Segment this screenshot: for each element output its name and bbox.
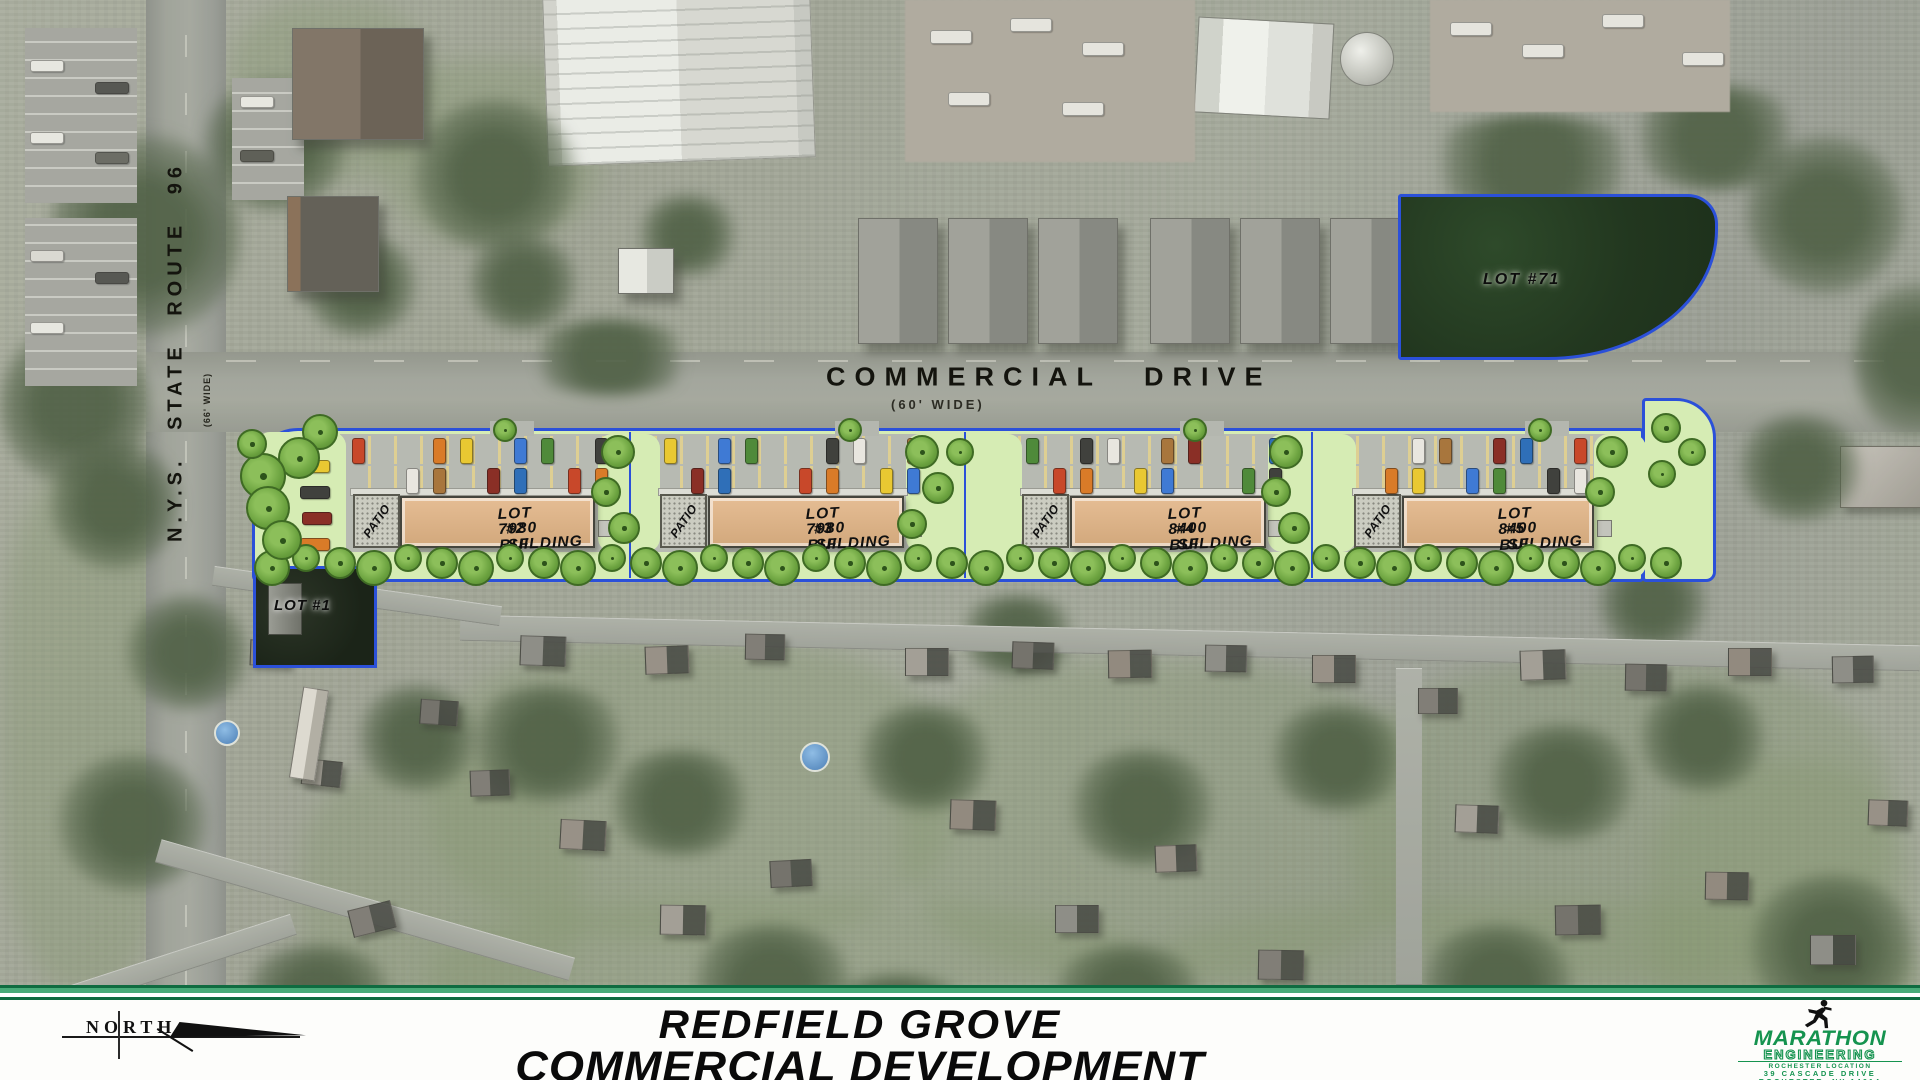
parked-car (1242, 468, 1255, 494)
parked-car (826, 468, 839, 494)
tree (1172, 550, 1208, 586)
tree (1596, 436, 1628, 468)
parked-car (1547, 468, 1560, 494)
tree (1278, 512, 1310, 544)
tree (1548, 547, 1580, 579)
tree (394, 544, 422, 572)
lot-2-patio: PATIO (353, 494, 400, 548)
north-arrow-icon (170, 1022, 306, 1037)
tree (1478, 550, 1514, 586)
tree (904, 544, 932, 572)
parked-car (1053, 468, 1066, 494)
parked-car (568, 468, 581, 494)
commercial-drive-width-note: (60' WIDE) (891, 397, 985, 412)
utility-pad (1597, 520, 1612, 537)
tree (764, 550, 800, 586)
lot-3-patio: PATIO (660, 494, 707, 548)
parked-car (433, 468, 446, 494)
tree (1210, 544, 1238, 572)
tree (1585, 477, 1615, 507)
tree (1414, 544, 1442, 572)
tree (1183, 418, 1207, 442)
parked-car (514, 438, 527, 464)
tree (1446, 547, 1478, 579)
tree (968, 550, 1004, 586)
parked-car (1161, 468, 1174, 494)
parked-car (1493, 438, 1506, 464)
tree (458, 550, 494, 586)
lot-71-label: LOT #71 (1483, 271, 1560, 289)
lot-4-patio: PATIO (1022, 494, 1069, 548)
tree (630, 547, 662, 579)
tree (1274, 550, 1310, 586)
route-96-label: N.Y.S. STATE ROUTE 96 (165, 162, 188, 542)
parked-car (406, 468, 419, 494)
parked-car (514, 468, 527, 494)
tree (866, 550, 902, 586)
tree (601, 435, 635, 469)
lot-2-building: LOT #2 7980 SF BUILDING (400, 496, 595, 548)
tree (1651, 413, 1681, 443)
sheet-title: REDFIELD GROVE COMMERCIAL DEVELOPMENT (314, 1005, 1406, 1080)
tree (560, 550, 596, 586)
queued-car (302, 512, 332, 525)
parked-car (1080, 468, 1093, 494)
north-arrow: NORTH (62, 1005, 312, 1061)
tree (662, 550, 698, 586)
tree (1648, 460, 1676, 488)
north-label: NORTH (86, 1017, 176, 1038)
parked-car (487, 468, 500, 494)
parked-car (1493, 468, 1506, 494)
parked-car (745, 438, 758, 464)
tree (598, 544, 626, 572)
firm-division: ENGINEERING (1738, 1047, 1902, 1062)
parked-car (1520, 438, 1533, 464)
runner-icon (1802, 999, 1836, 1029)
parked-car (853, 438, 866, 464)
parked-car (880, 468, 893, 494)
tree (802, 544, 830, 572)
tree (356, 550, 392, 586)
tree (591, 477, 621, 507)
tree (1269, 435, 1303, 469)
parked-car (1385, 468, 1398, 494)
tree (1140, 547, 1172, 579)
tree (237, 429, 267, 459)
parked-car (1161, 438, 1174, 464)
parked-car (1412, 468, 1425, 494)
tree (1108, 544, 1136, 572)
tree (834, 547, 866, 579)
tree (732, 547, 764, 579)
title-block: NORTH REDFIELD GROVE COMMERCIAL DEVELOPM… (0, 985, 1920, 1080)
parked-car (1080, 438, 1093, 464)
tree (1038, 547, 1070, 579)
tree (1376, 550, 1412, 586)
parked-car (1107, 438, 1120, 464)
lot-4-type: BUILDING (1169, 533, 1253, 553)
parked-car (1134, 468, 1147, 494)
tree (897, 509, 927, 539)
parked-car (826, 438, 839, 464)
tree (1580, 550, 1616, 586)
tree (496, 544, 524, 572)
separator-line (0, 997, 1920, 1000)
lot-3-building: LOT #3 7980 SF BUILDING (708, 496, 904, 548)
tree (426, 547, 458, 579)
tree (324, 547, 356, 579)
tree (1312, 544, 1340, 572)
commercial-drive-label: COMMERCIAL DRIVE (826, 363, 1272, 393)
parked-car (907, 468, 920, 494)
parked-car (718, 438, 731, 464)
lot-4-building: LOT #4 8400 SF BUILDING (1070, 496, 1266, 548)
parked-car (352, 438, 365, 464)
aerial-map: LOT #71 LOT #1 PATIO LOT #2 7980 SF BUIL… (0, 0, 1920, 985)
tree (922, 472, 954, 504)
tree (905, 435, 939, 469)
lot-5-building: LOT #5 8400 SF BUILDING (1402, 496, 1594, 548)
tree (1678, 438, 1706, 466)
site-plan-sheet: LOT #71 LOT #1 PATIO LOT #2 7980 SF BUIL… (0, 0, 1920, 1080)
tree (838, 418, 862, 442)
tree (946, 438, 974, 466)
parked-car (691, 468, 704, 494)
parked-car (718, 468, 731, 494)
parked-car (1466, 468, 1479, 494)
parked-car (460, 438, 473, 464)
route-96-width-note: (66' WIDE) (202, 373, 212, 427)
tree (1344, 547, 1376, 579)
tree (936, 547, 968, 579)
parked-car (664, 438, 677, 464)
engineer-logo: MARATHON ENGINEERING ROCHESTER LOCATION … (1738, 1001, 1902, 1079)
tree (528, 547, 560, 579)
lot-1-label: LOT #1 (274, 597, 331, 614)
tree (1261, 477, 1291, 507)
parked-car (541, 438, 554, 464)
tree (1006, 544, 1034, 572)
tree (1242, 547, 1274, 579)
tree (262, 520, 302, 560)
tree (493, 418, 517, 442)
tree (1650, 547, 1682, 579)
title-line-2: COMMERCIAL DEVELOPMENT (314, 1045, 1406, 1080)
queued-car (300, 486, 330, 499)
parked-car (1574, 438, 1587, 464)
title-line-1: REDFIELD GROVE (314, 1005, 1406, 1045)
parked-car (1439, 438, 1452, 464)
parked-car (799, 468, 812, 494)
tree (1070, 550, 1106, 586)
tree (1516, 544, 1544, 572)
parked-car (1026, 438, 1039, 464)
tree (1618, 544, 1646, 572)
parked-car (1412, 438, 1425, 464)
tree (700, 544, 728, 572)
tree (608, 512, 640, 544)
parked-car (433, 438, 446, 464)
tree (1528, 418, 1552, 442)
lot-5-patio: PATIO (1354, 494, 1401, 548)
